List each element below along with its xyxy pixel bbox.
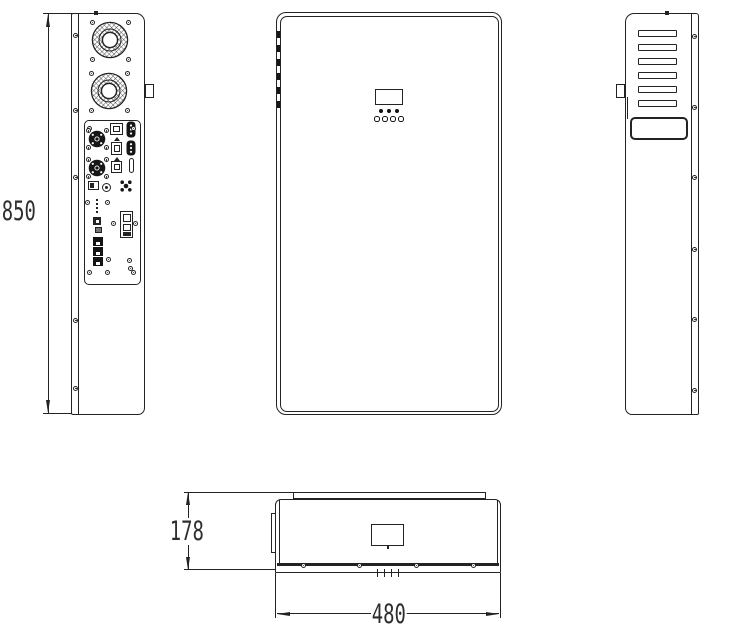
screw <box>127 258 132 263</box>
screw <box>692 388 697 393</box>
hanger-tab-mark <box>94 11 98 15</box>
display-housing-top-view <box>371 524 404 546</box>
vent-slot <box>638 86 677 93</box>
led-indicator <box>390 116 395 121</box>
small-port-pin <box>96 220 99 223</box>
extension-line <box>275 573 276 618</box>
fan-screw <box>125 71 130 76</box>
screw <box>692 105 697 110</box>
square-connector-3-inner <box>114 164 120 170</box>
arrow-down-icon <box>46 400 50 413</box>
dsub-connector-2 <box>126 140 136 156</box>
connector-screw <box>86 174 91 179</box>
fan-screw <box>90 20 95 25</box>
depth-dimension-label: 178 <box>169 518 205 545</box>
panel-screw <box>105 270 110 275</box>
connector-screw <box>104 128 109 133</box>
square-connector-2-inner <box>114 145 120 152</box>
marker-triangle-icon <box>114 137 120 141</box>
screw <box>111 221 116 226</box>
side-tab-top-view <box>271 513 276 553</box>
led-hole-tick <box>377 569 379 577</box>
round-connector-pin <box>105 186 108 189</box>
edge-screw <box>414 563 419 568</box>
arrow-right-icon <box>486 612 499 616</box>
front-bezel-edge-line <box>691 13 692 415</box>
display-tick <box>387 546 389 550</box>
rj45-port-3 <box>93 257 103 266</box>
edge-screw <box>471 563 476 568</box>
inner-edge-line <box>279 500 280 563</box>
front-view-inner-edge <box>280 16 499 412</box>
fan-screw <box>90 57 95 62</box>
led-indicator <box>382 116 387 121</box>
tab-edge-line <box>627 97 628 119</box>
vent-edge-notch <box>277 101 281 108</box>
connector-screw <box>86 157 91 162</box>
hanger-tab-mark <box>665 11 669 15</box>
edge-screw <box>301 563 306 568</box>
screw <box>128 266 133 271</box>
front-edge-heavy-line <box>277 563 499 566</box>
connector-screw <box>86 128 91 133</box>
vent-slot <box>638 30 677 37</box>
screw <box>692 247 697 252</box>
marker-triangle-icon <box>114 157 120 161</box>
cooling-fan-top <box>90 20 130 60</box>
height-dimension-line <box>48 14 49 414</box>
screw <box>106 257 111 262</box>
connector-screw <box>104 157 109 162</box>
vent-slot <box>638 100 677 107</box>
fan-screw <box>89 71 94 76</box>
slot-connector <box>129 158 134 173</box>
vent-edge-notch <box>277 31 281 38</box>
small-port-2 <box>95 227 102 233</box>
vent-edge-notch <box>277 45 281 52</box>
screw <box>73 318 78 323</box>
screw <box>105 200 110 205</box>
fan-screw <box>126 20 131 25</box>
screw <box>73 108 78 113</box>
arrow-left-icon <box>277 612 290 616</box>
circular-connector-2 <box>88 159 106 177</box>
panel-screw <box>131 126 136 131</box>
side-tab <box>616 84 626 98</box>
screw <box>73 175 78 180</box>
led-hole-tick <box>384 569 386 577</box>
inner-edge-line <box>497 500 498 563</box>
screw <box>692 175 697 180</box>
antenna-dotted-line <box>96 199 98 215</box>
star-connector <box>119 179 133 193</box>
vent-slot <box>638 58 677 65</box>
side-tab <box>145 84 155 98</box>
technical-drawing: 850 <box>0 0 730 632</box>
vent-slot <box>638 44 677 51</box>
screw <box>133 221 138 226</box>
arrow-up-icon <box>46 14 50 27</box>
handle <box>630 117 688 140</box>
extension-line <box>184 569 275 570</box>
screw <box>692 317 697 322</box>
square-connector-1-inner <box>113 126 120 132</box>
arrow-up-icon <box>186 492 190 505</box>
vent-slot <box>638 72 677 79</box>
panel-screw <box>87 270 92 275</box>
rj45-port-2 <box>93 247 103 256</box>
connector-screw <box>104 174 109 179</box>
mount-strip <box>293 492 486 499</box>
screw <box>73 33 78 38</box>
extension-line <box>500 573 501 618</box>
width-dimension-label: 480 <box>371 601 407 628</box>
lcd-display <box>375 89 403 105</box>
height-dimension-label: 850 <box>1 198 37 225</box>
led-indicator <box>398 116 403 121</box>
front-bezel-edge-line <box>78 13 79 415</box>
cooling-fan-bottom <box>89 71 129 111</box>
led-hole-tick <box>391 569 393 577</box>
screw <box>692 34 697 39</box>
fan-screw <box>89 108 94 113</box>
vent-edge-notch <box>277 59 281 66</box>
arrow-down-icon <box>186 557 190 570</box>
fan-screw <box>125 108 130 113</box>
vent-edge-notch <box>277 87 281 94</box>
led-indicator <box>374 116 379 121</box>
fan-screw <box>126 57 131 62</box>
breaker-band <box>123 232 131 236</box>
vent-edge-notch <box>277 73 281 80</box>
connector-screw <box>86 145 91 150</box>
breaker-window-1 <box>123 214 131 222</box>
extension-line <box>184 492 293 493</box>
switch-toggle <box>90 183 94 188</box>
screw <box>85 200 90 205</box>
led-hole-tick <box>398 569 400 577</box>
rj45-port-1 <box>93 237 103 246</box>
screw <box>73 386 78 391</box>
connector-screw <box>104 145 109 150</box>
circular-connector-1 <box>88 130 106 148</box>
breaker-window-2 <box>123 224 131 231</box>
edge-screw <box>357 563 362 568</box>
